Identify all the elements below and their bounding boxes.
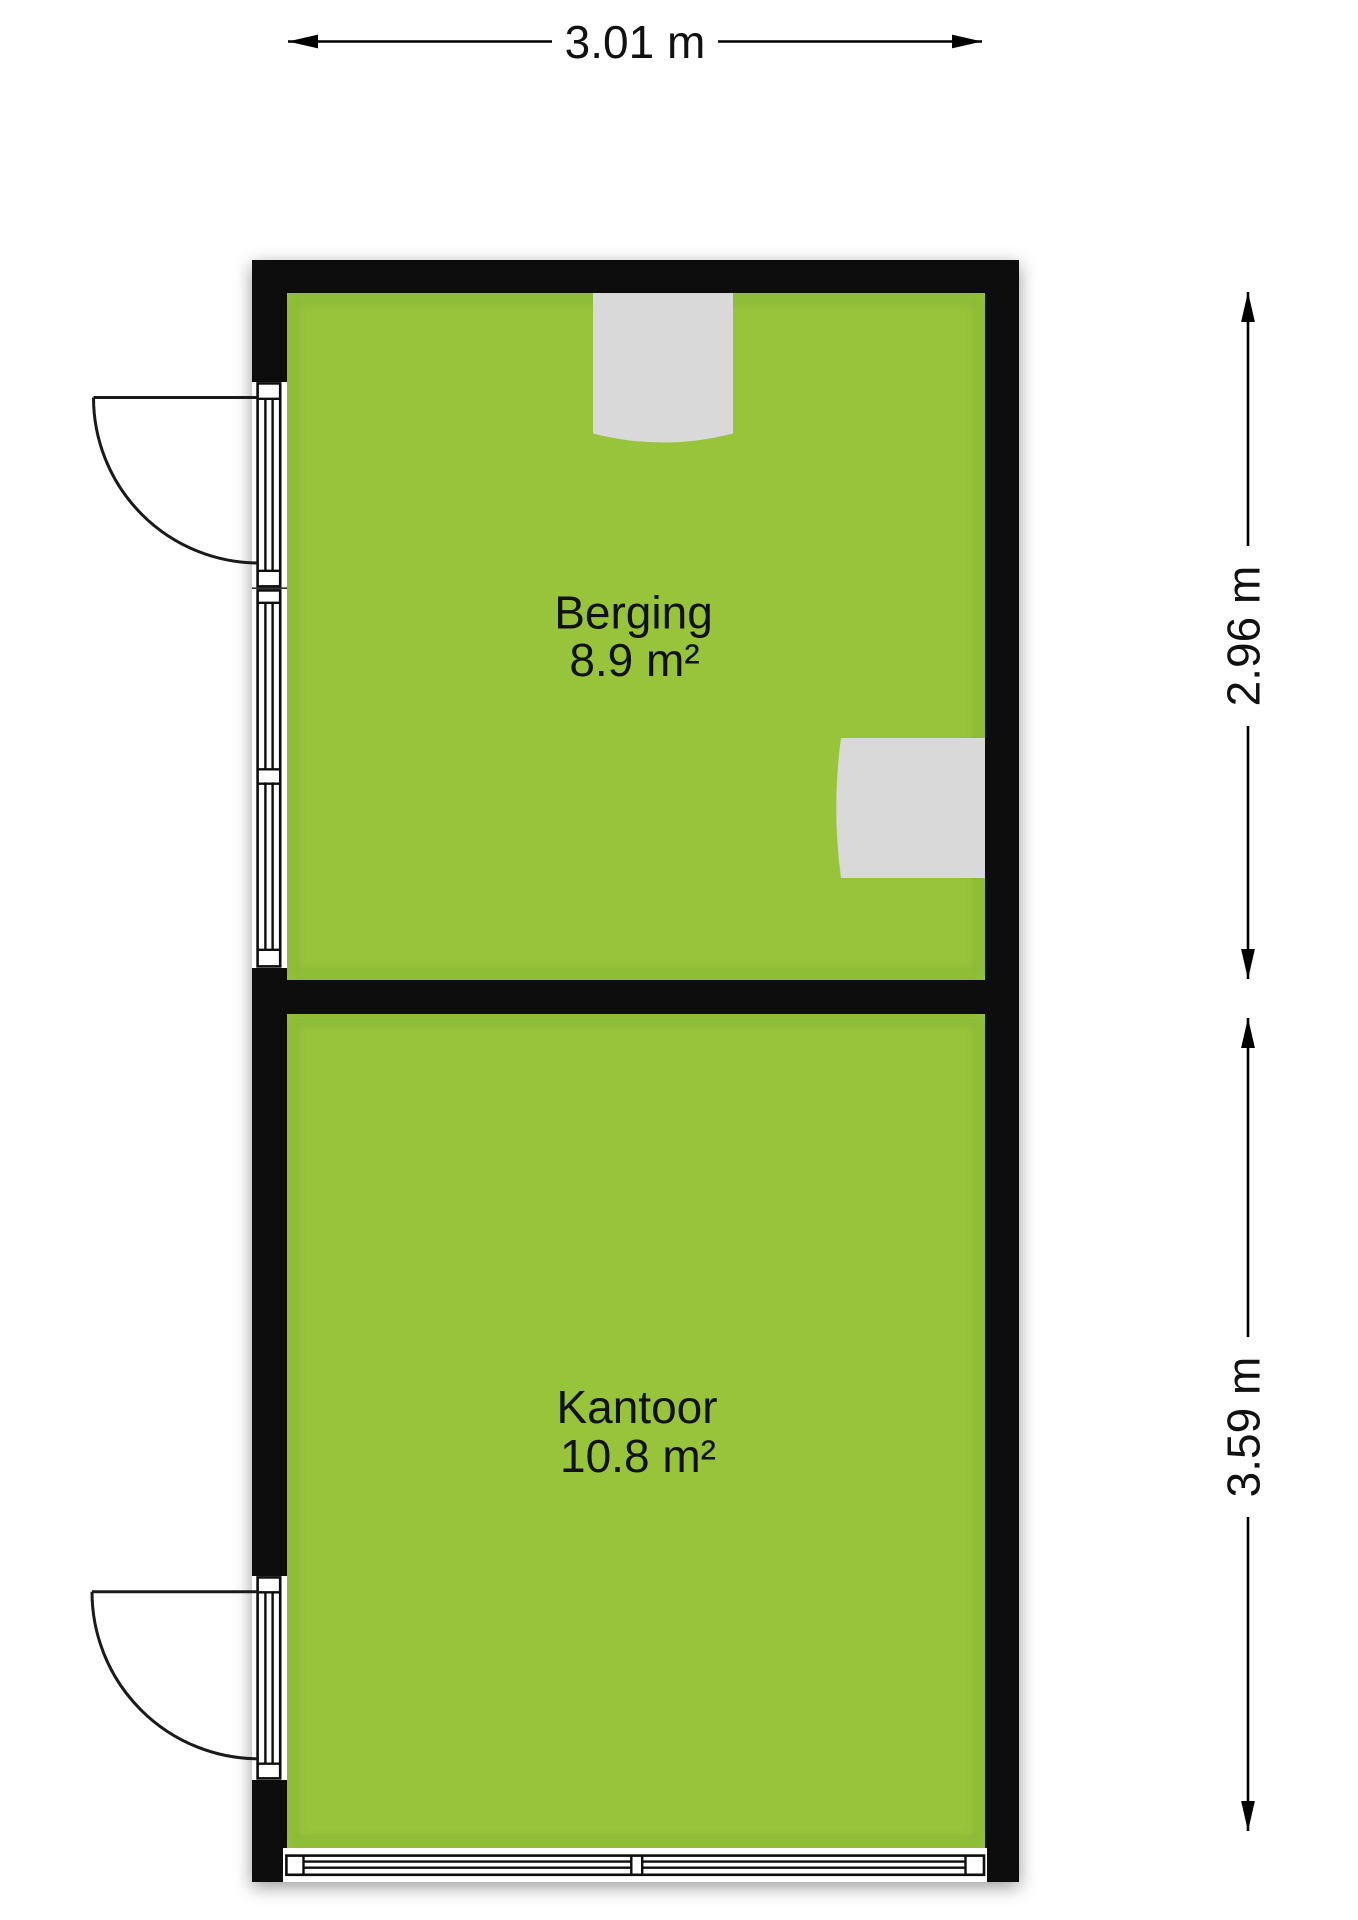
svg-text:8.9 m²: 8.9 m² [569,634,699,686]
svg-text:2.96 m: 2.96 m [1218,566,1270,707]
svg-text:3.59 m: 3.59 m [1218,1357,1270,1498]
svg-text:3.01 m: 3.01 m [565,16,706,68]
svg-text:10.8 m²: 10.8 m² [560,1430,716,1482]
svg-text:Kantoor: Kantoor [556,1381,717,1433]
svg-text:Berging: Berging [554,587,713,639]
